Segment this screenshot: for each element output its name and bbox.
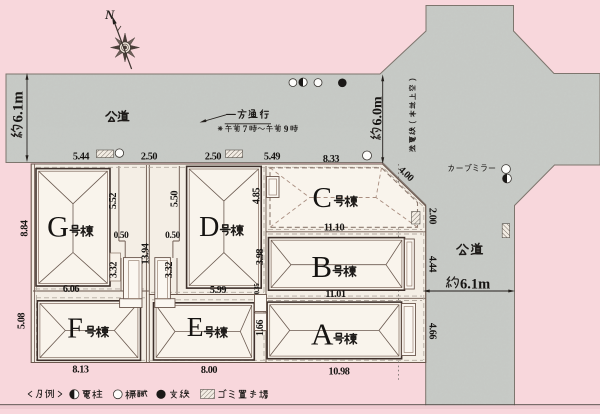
svg-text:8.13: 8.13 — [72, 365, 89, 376]
svg-text:3.98: 3.98 — [255, 249, 266, 266]
svg-text:5.49: 5.49 — [264, 152, 281, 163]
svg-text:C: C — [313, 182, 332, 214]
svg-text:4.44: 4.44 — [427, 256, 438, 273]
svg-text:3.32: 3.32 — [109, 262, 120, 279]
svg-text:E: E — [187, 311, 203, 342]
svg-text:5.99: 5.99 — [210, 285, 227, 296]
svg-text:0.50: 0.50 — [165, 231, 180, 241]
svg-text:4.85: 4.85 — [252, 188, 263, 205]
svg-text:G: G — [47, 211, 68, 244]
svg-text:0.35: 0.35 — [253, 283, 261, 295]
svg-text:F: F — [67, 314, 82, 345]
svg-text:10.98: 10.98 — [329, 367, 350, 378]
svg-text:1.66: 1.66 — [255, 320, 266, 337]
svg-text:5.44: 5.44 — [73, 152, 90, 163]
svg-text:2.50: 2.50 — [205, 152, 222, 163]
svg-text:N: N — [104, 7, 115, 22]
svg-text:6.0m: 6.0m — [371, 96, 386, 126]
svg-text:5.08: 5.08 — [17, 313, 28, 330]
svg-text:4.66: 4.66 — [427, 323, 438, 340]
svg-text:11.10: 11.10 — [324, 222, 345, 233]
svg-text:8.00: 8.00 — [201, 365, 218, 376]
svg-text:2.00: 2.00 — [427, 208, 438, 225]
svg-text:6.1m: 6.1m — [460, 277, 490, 293]
svg-text:D: D — [199, 212, 219, 243]
svg-text:5.50: 5.50 — [170, 191, 181, 208]
svg-text:11.01: 11.01 — [325, 289, 346, 300]
svg-text:6.1m: 6.1m — [11, 91, 27, 123]
svg-text:B: B — [311, 249, 331, 284]
svg-text:3.32: 3.32 — [164, 262, 175, 279]
svg-text:0.50: 0.50 — [114, 231, 129, 241]
svg-text:8.33: 8.33 — [323, 154, 340, 165]
svg-text:6.06: 6.06 — [63, 284, 80, 295]
svg-text:5.52: 5.52 — [108, 193, 119, 210]
svg-text:13.94: 13.94 — [141, 243, 152, 264]
svg-text:2.50: 2.50 — [141, 152, 158, 163]
svg-text:A: A — [311, 317, 334, 352]
svg-text:8.84: 8.84 — [20, 220, 31, 237]
